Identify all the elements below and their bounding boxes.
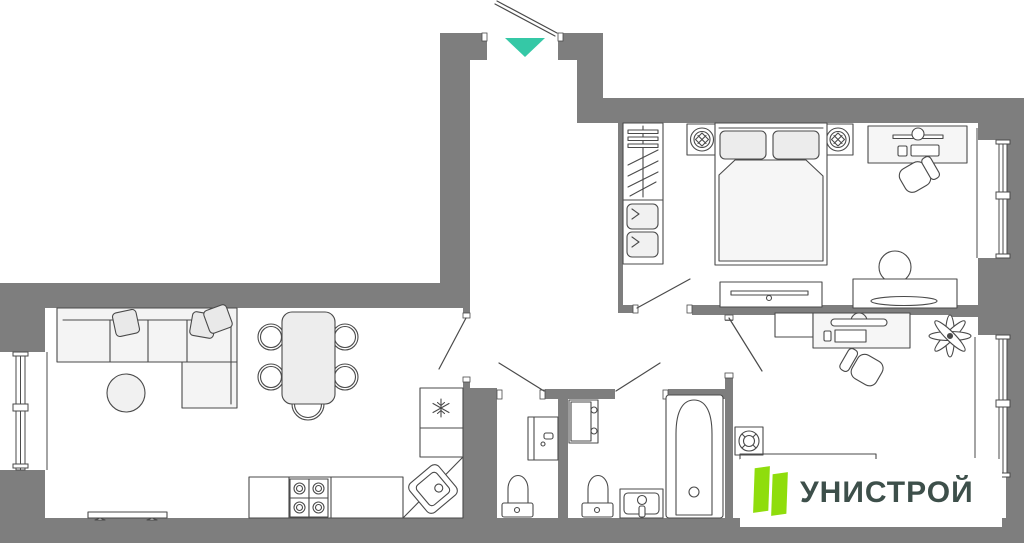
wall-segment [978, 98, 1024, 140]
coffee-table [107, 374, 145, 412]
pillow [720, 131, 766, 159]
logo-text: УНИСТРОЙ [800, 478, 974, 508]
bedroom-desk [868, 126, 967, 163]
double-bed [715, 123, 827, 265]
bedroom-window [977, 128, 1010, 258]
building-entry-door-swing [495, 1, 557, 36]
sofa-pillow [112, 309, 140, 337]
wall-segment [0, 283, 470, 308]
wc-door-swing [499, 363, 544, 391]
floor-plan-page: УНИСТРОЙ [0, 0, 1024, 552]
wall-segment [558, 33, 603, 60]
plant [929, 315, 971, 357]
wall-segment [577, 60, 603, 123]
kitchen-door-swing [439, 318, 466, 369]
wall-segment [725, 378, 733, 520]
wall-segment [440, 33, 487, 60]
wall-segment [618, 123, 623, 308]
dining-table [282, 312, 335, 404]
table-lamp-icon [691, 128, 714, 151]
bedroom-door-swing [637, 279, 690, 308]
wall-segment [0, 283, 45, 352]
wardrobe [623, 123, 663, 264]
office-shelf [775, 313, 813, 337]
dressing-table [853, 279, 957, 308]
wall-segment [463, 388, 497, 520]
bathroom-sink [620, 489, 663, 518]
wc-toilet [502, 476, 533, 518]
bathtub [666, 395, 723, 518]
stool [879, 251, 911, 283]
washing-machine [528, 417, 558, 460]
pillow [773, 131, 819, 159]
bathroom-cabinet [569, 400, 598, 443]
ceiling-spotlight [735, 427, 763, 455]
wall-segment [545, 389, 615, 399]
dresser-tv [720, 282, 822, 307]
wall-segment [978, 258, 1024, 335]
bathroom-toilet [582, 476, 613, 518]
table-lamp-icon [827, 128, 850, 151]
unistroy-logo-icon [740, 459, 796, 527]
office-desk [813, 313, 910, 348]
wall-segment [603, 98, 1010, 123]
wall-segment [558, 390, 568, 520]
office-door-swing [729, 318, 762, 371]
office-chair [838, 345, 886, 388]
refrigerator [420, 388, 463, 428]
wall-segment [440, 33, 470, 308]
office-window [975, 335, 1010, 477]
bathroom-door-swing [616, 363, 660, 391]
living-room-window [13, 352, 47, 470]
entrance-arrow [505, 38, 545, 57]
logo-parallelogram-right [771, 472, 788, 516]
stove [290, 479, 328, 517]
unistroy-logo: УНИСТРОЙ [740, 459, 1002, 527]
logo-parallelogram-left [753, 466, 770, 513]
